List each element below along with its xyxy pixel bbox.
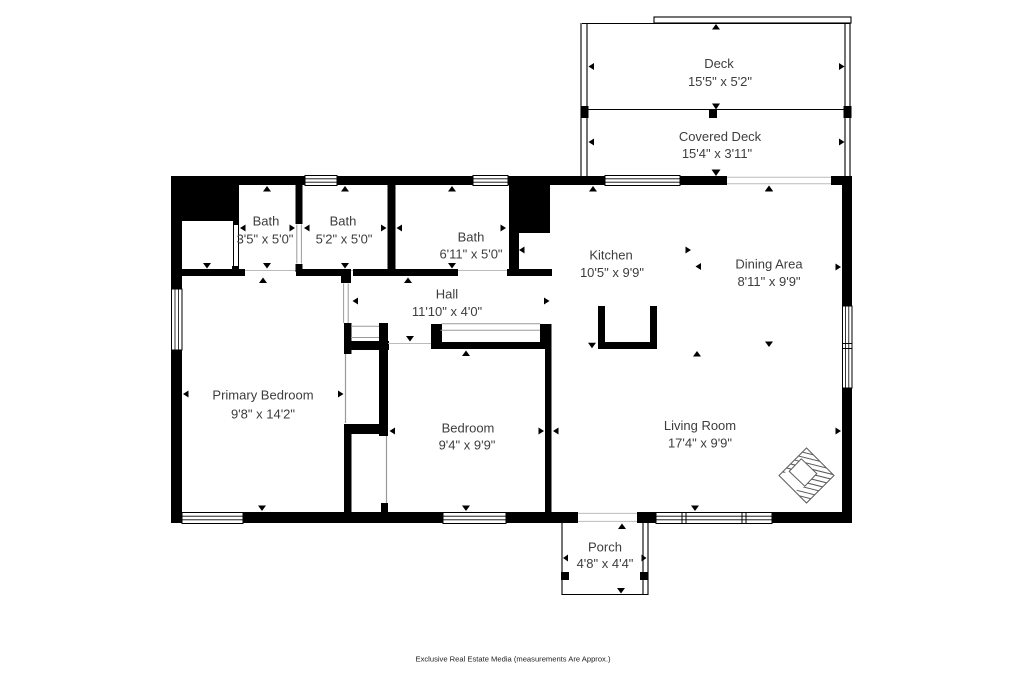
svg-text:Kitchen: Kitchen [589, 248, 632, 263]
svg-text:15'4" x 3'11": 15'4" x 3'11" [682, 146, 753, 161]
svg-text:11'10" x 4'0": 11'10" x 4'0" [412, 304, 483, 319]
svg-text:9'4" x 9'9": 9'4" x 9'9" [439, 438, 496, 453]
svg-text:Covered Deck: Covered Deck [679, 129, 762, 144]
svg-text:Hall: Hall [436, 287, 459, 302]
svg-text:9'8" x 14'2": 9'8" x 14'2" [231, 407, 295, 422]
svg-text:17'4" x 9'9": 17'4" x 9'9" [668, 436, 732, 451]
svg-text:10'5" x 9'9": 10'5" x 9'9" [580, 265, 644, 280]
svg-text:8'11" x 9'9": 8'11" x 9'9" [737, 274, 800, 289]
svg-text:3'5" x 5'0": 3'5" x 5'0" [237, 232, 294, 247]
svg-text:15'5" x 5'2": 15'5" x 5'2" [688, 74, 752, 89]
svg-text:Bath: Bath [458, 230, 485, 245]
svg-text:Porch: Porch [588, 540, 622, 555]
svg-text:6'11" x 5'0": 6'11" x 5'0" [439, 247, 502, 262]
svg-text:Bedroom: Bedroom [442, 421, 495, 436]
svg-text:Bath: Bath [253, 214, 280, 229]
svg-text:5'2" x 5'0": 5'2" x 5'0" [316, 232, 373, 247]
svg-text:Living Room: Living Room [664, 418, 736, 433]
svg-text:Deck: Deck [704, 56, 734, 71]
svg-text:4'8" x 4'4": 4'8" x 4'4" [577, 556, 634, 571]
svg-text:Primary Bedroom: Primary Bedroom [212, 388, 313, 403]
svg-text:Exclusive Real Estate Media (m: Exclusive Real Estate Media (measurement… [416, 655, 611, 664]
svg-text:Bath: Bath [330, 214, 357, 229]
svg-text:Dining Area: Dining Area [735, 257, 803, 272]
